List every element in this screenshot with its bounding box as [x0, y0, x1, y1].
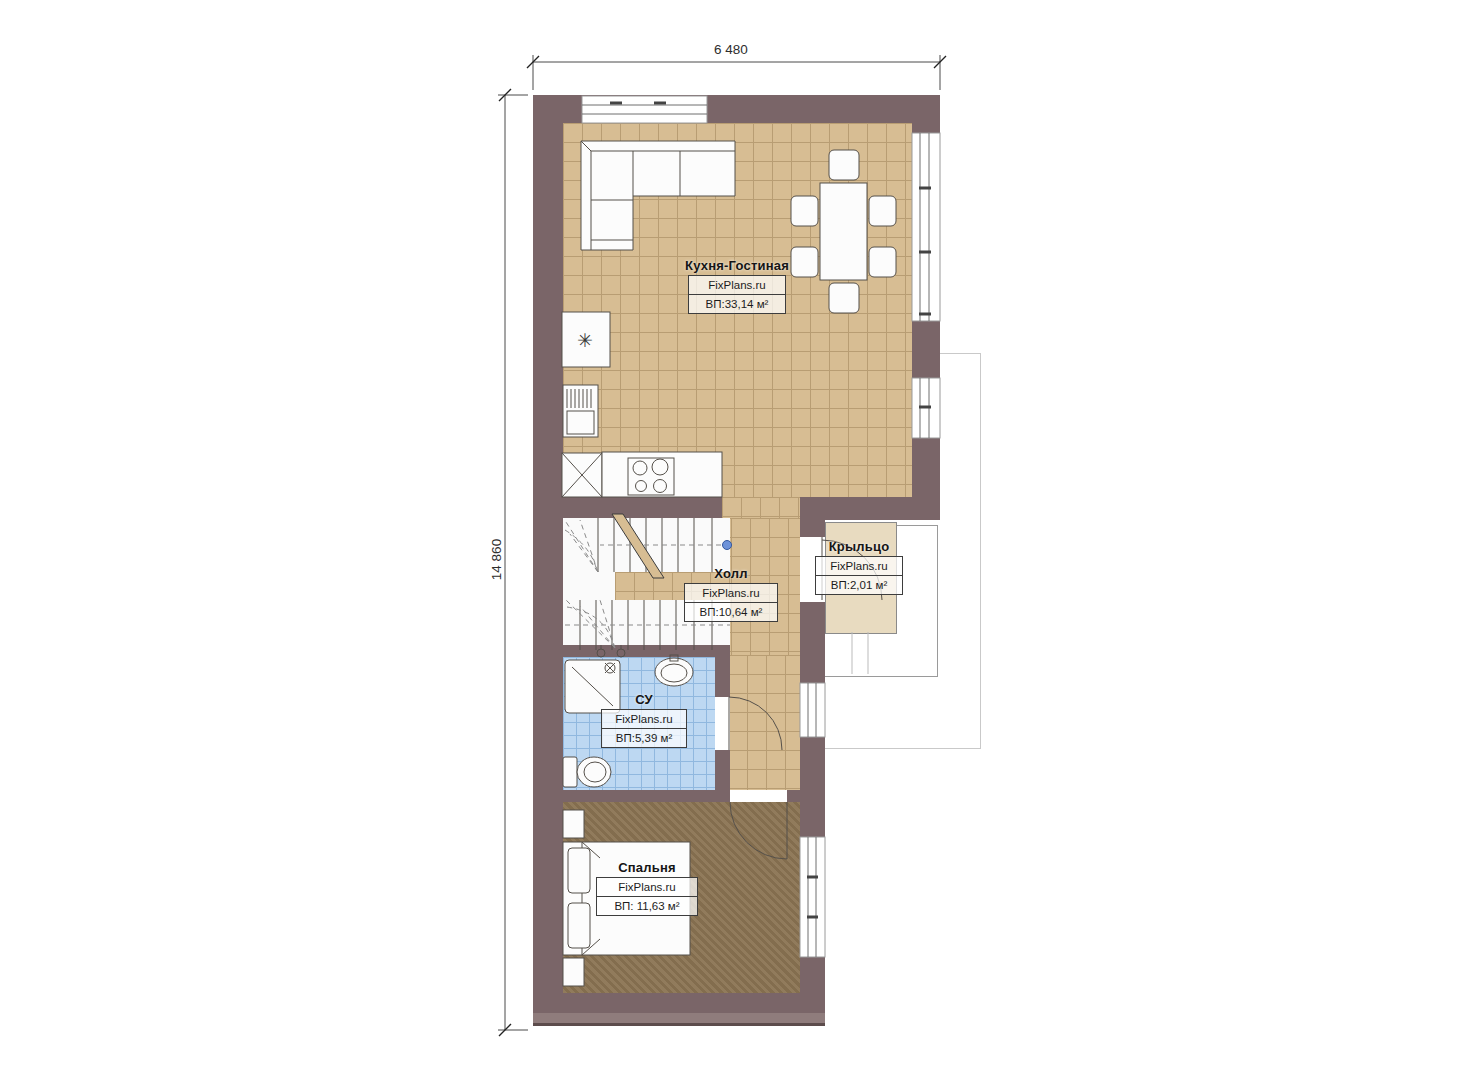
- room-name: Крыльцо: [812, 539, 906, 554]
- brand-watermark: FixPlans.ru: [816, 557, 902, 575]
- room-area: ВП:2,01 м²: [816, 575, 902, 594]
- window-bedroom-right: [800, 837, 825, 957]
- room-info-box: FixPlans.ru ВП:5,39 м²: [601, 709, 687, 748]
- brand-watermark: FixPlans.ru: [602, 710, 686, 728]
- dimension-height-label: 14 860: [489, 532, 504, 588]
- room-area: ВП:10,64 м²: [685, 602, 777, 621]
- brand-watermark: FixPlans.ru: [685, 584, 777, 602]
- plan-linework: [0, 0, 1474, 1080]
- window-living-right: [912, 133, 940, 321]
- kitchen-sink-unit: [563, 385, 598, 437]
- wall-faucet-icons: [597, 645, 625, 657]
- room-info-box: FixPlans.ru ВП:10,64 м²: [684, 583, 778, 622]
- room-area: ВП:33,14 м²: [689, 294, 785, 313]
- brand-watermark: FixPlans.ru: [597, 878, 697, 896]
- room-area: ВП: 11,63 м²: [597, 896, 697, 915]
- brand-watermark: FixPlans.ru: [689, 276, 785, 294]
- room-name: Кухня-Гостиная: [672, 258, 802, 273]
- room-label-porch: Крыльцо FixPlans.ru ВП:2,01 м²: [812, 539, 906, 595]
- bathroom-door: [715, 697, 782, 750]
- window-top: [582, 96, 707, 123]
- corner-sofa: [581, 141, 735, 250]
- room-info-box: FixPlans.ru ВП:33,14 м²: [688, 275, 786, 314]
- window-hall-right: [800, 683, 825, 737]
- room-info-box: FixPlans.ru ВП:2,01 м²: [815, 556, 903, 595]
- room-info-box: FixPlans.ru ВП: 11,63 м²: [596, 877, 698, 916]
- corner-cabinet: [562, 453, 602, 497]
- hall-marker-dot: [723, 541, 732, 550]
- floor-plan: ✳: [0, 0, 1474, 1080]
- room-label-bedroom: Спальня FixPlans.ru ВП: 11,63 м²: [590, 860, 704, 916]
- porch-steps: [852, 632, 868, 674]
- room-name: Холл: [676, 566, 786, 581]
- room-area: ВП:5,39 м²: [602, 728, 686, 747]
- dining-table-set: [791, 150, 896, 313]
- dimension-width-label: 6 480: [714, 42, 748, 57]
- washbasin: [655, 655, 693, 686]
- room-label-hall: Холл FixPlans.ru ВП:10,64 м²: [676, 566, 786, 622]
- room-name: СУ: [592, 692, 696, 707]
- bedroom-door: [730, 790, 787, 859]
- room-label-kitchen-living: Кухня-Гостиная FixPlans.ru ВП:33,14 м²: [672, 258, 802, 314]
- room-label-bathroom: СУ FixPlans.ru ВП:5,39 м²: [592, 692, 696, 748]
- toilet: [563, 757, 611, 787]
- room-name: Спальня: [590, 860, 704, 875]
- window-kitchen-right: [912, 378, 940, 438]
- fridge-icon: ✳: [577, 329, 593, 352]
